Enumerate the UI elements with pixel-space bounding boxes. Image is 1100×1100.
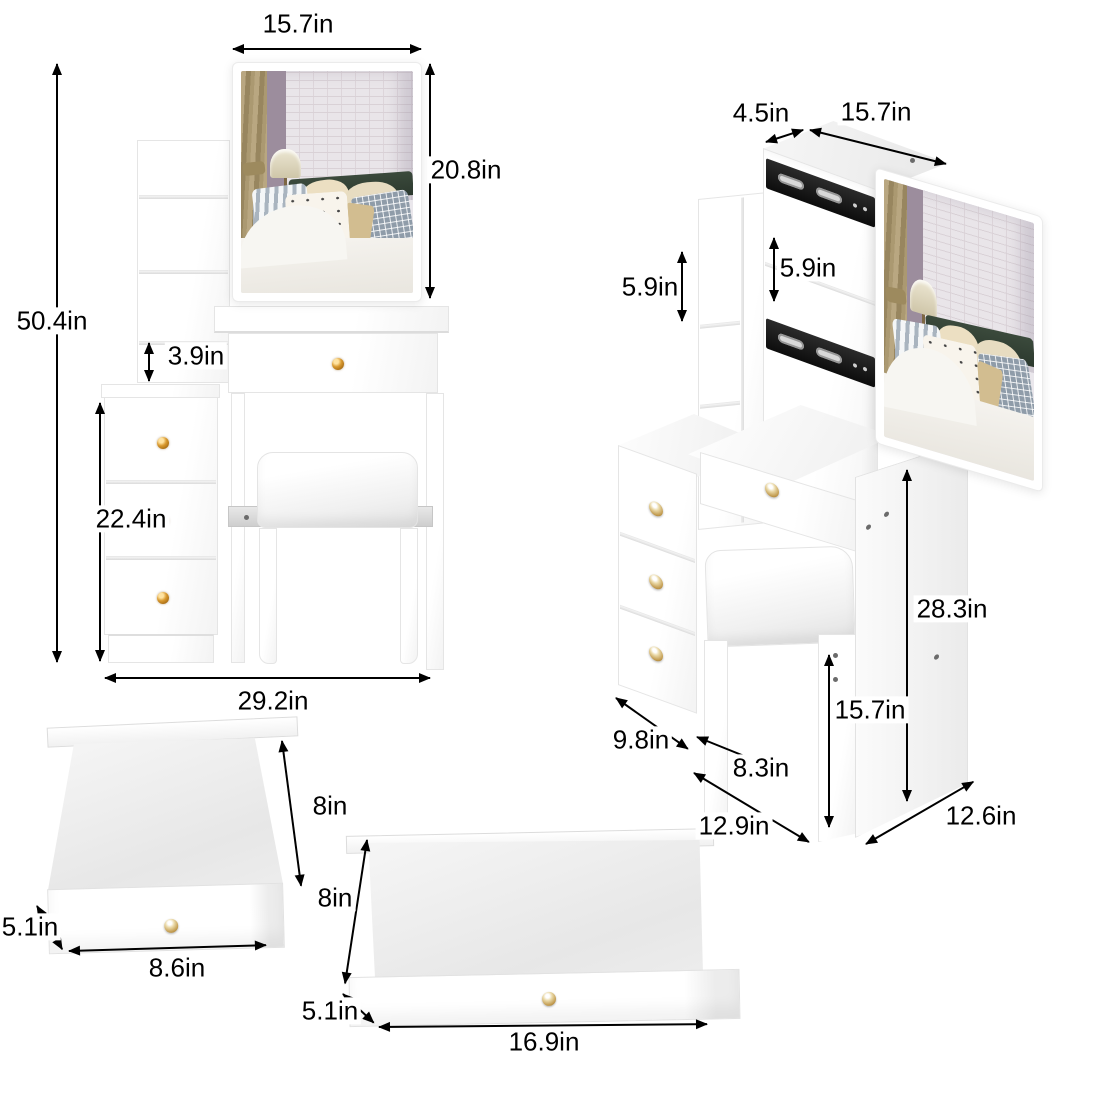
photo-curtain-tieback (242, 161, 266, 177)
dim-small-drawer-width: 8.6in (146, 954, 208, 981)
dim-front-mirror-height: 20.8in (428, 156, 505, 183)
dim-front-shelf-gap: 3.9in (165, 342, 227, 369)
arrow-stool-height (828, 655, 830, 827)
arrow-shelf-gap (148, 343, 150, 381)
dim-side-mirror-width: 15.7in (838, 98, 915, 125)
dim-front-cabinet-height: 22.4in (93, 505, 170, 532)
drawer-knob (542, 992, 556, 1006)
dim-small-drawer-depth: 8in (310, 792, 351, 819)
dim-large-drawer-height: 5.1in (299, 997, 361, 1024)
dim-side-base-depth: 12.9in (696, 812, 773, 839)
arrow-shelf-right (773, 238, 775, 301)
dim-small-drawer-height: 5.1in (0, 913, 61, 940)
arrow-total-width (105, 677, 430, 679)
dim-side-stool-width: 8.3in (730, 754, 792, 781)
dim-large-drawer-depth: 8in (315, 884, 356, 911)
photo-lamp-shade (270, 149, 301, 178)
dim-front-total-height: 50.4in (14, 307, 91, 334)
dim-front-total-width: 29.2in (235, 687, 312, 714)
dim-side-shelf-left: 5.9in (619, 273, 681, 300)
dim-front-mirror-width: 15.7in (260, 10, 337, 37)
arrow-desk-height (906, 470, 908, 801)
dim-side-stool-height: 15.7in (832, 696, 909, 723)
dim-side-shelf-right: 5.9in (777, 254, 839, 281)
arrow-mirror-width (233, 48, 421, 50)
dim-side-top-depth: 4.5in (730, 99, 792, 126)
dim-large-drawer-width: 16.9in (506, 1028, 583, 1055)
mirror-photo (884, 179, 1034, 481)
drawer-front (349, 969, 741, 1027)
dim-side-desk-height: 28.3in (914, 595, 991, 622)
arrow-total-height (56, 64, 58, 662)
drawer-interior (358, 840, 703, 983)
arrow-shelf-left (681, 252, 683, 321)
dim-side-panel-depth: 12.6in (943, 802, 1020, 829)
side-mirror (875, 167, 1043, 493)
screw (910, 158, 915, 163)
front-mirror (232, 62, 422, 302)
dim-side-cabinet-depth: 9.8in (610, 726, 672, 753)
vanity-dimension-diagram: 15.7in 20.8in 50.4in 3.9in 22.4in 29.2in (0, 0, 1100, 1100)
mirror-photo (241, 71, 413, 293)
